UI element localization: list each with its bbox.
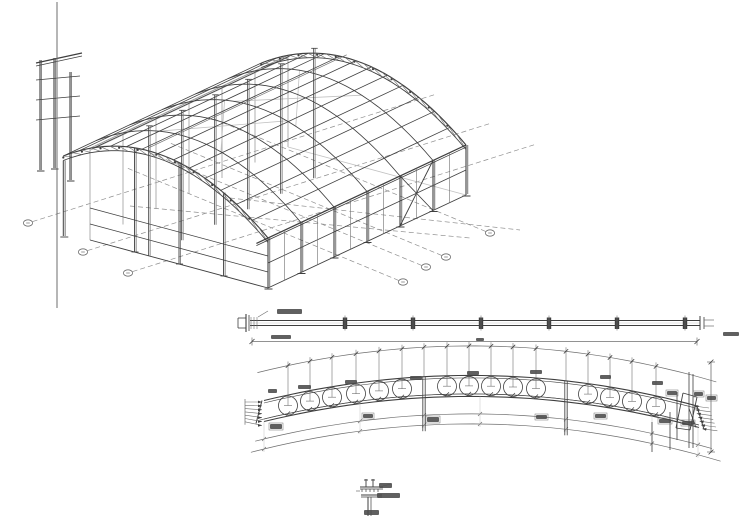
- micro-text-label: [659, 419, 671, 423]
- truss-node-gusset: [174, 161, 176, 163]
- micro-text-label: [379, 483, 392, 488]
- truss-node-gusset: [137, 149, 139, 151]
- micro-text-label: [268, 389, 277, 393]
- micro-text-label: [595, 414, 606, 418]
- micro-text-label: [345, 380, 357, 384]
- truss-node-gusset: [279, 57, 281, 59]
- truss-node-gusset: [155, 154, 157, 156]
- truss-node-gusset: [297, 54, 299, 56]
- truss-node-gusset: [428, 106, 430, 108]
- truss-node-gusset: [260, 63, 262, 65]
- truss-node-gusset: [81, 150, 83, 152]
- micro-text-label: [364, 510, 379, 515]
- micro-text-label: [723, 332, 739, 336]
- curved-girder-detail-view: [245, 342, 721, 461]
- micro-text-label: [410, 376, 422, 380]
- micro-text-label: [377, 493, 400, 498]
- end-wall-frame: [36, 53, 82, 181]
- beam-elevation-view: [238, 309, 739, 346]
- connection-section-detail: [356, 479, 400, 516]
- truss-node-gusset: [446, 125, 448, 127]
- micro-text-label: [707, 396, 716, 400]
- truss-node-gusset: [211, 184, 213, 186]
- micro-text-label: [476, 338, 484, 341]
- leader-arrow: [258, 416, 262, 419]
- micro-text-label: [427, 417, 439, 422]
- truss-node-gusset: [353, 61, 355, 63]
- truss-node-gusset: [230, 199, 232, 201]
- cad-drawing-canvas: [0, 0, 750, 516]
- ground-grid-lines: [23, 94, 536, 285]
- leader-arrow: [258, 420, 262, 423]
- micro-text-label: [530, 370, 542, 374]
- leader-arrow: [258, 424, 262, 427]
- truss-node-gusset: [248, 218, 250, 220]
- micro-text-label: [363, 414, 373, 418]
- leader-arrow: [695, 409, 699, 412]
- leader-arrow: [258, 412, 262, 415]
- truss-node-gusset: [390, 78, 392, 80]
- micro-text-label: [682, 421, 694, 425]
- micro-text-label: [652, 381, 663, 385]
- truss-node-gusset: [62, 156, 64, 158]
- micro-text-label: [694, 392, 703, 396]
- drawing-sheet: [0, 0, 750, 516]
- micro-text-label: [600, 375, 611, 379]
- truss-node-gusset: [409, 91, 411, 93]
- truss-node-gusset: [118, 147, 120, 149]
- isometric-structure-view: [60, 48, 470, 289]
- micro-text-label: [271, 335, 291, 339]
- truss-node-gusset: [99, 147, 101, 149]
- micro-text-label: [667, 391, 677, 395]
- truss-node-gusset: [192, 171, 194, 173]
- micro-text-label: [536, 415, 547, 419]
- truss-node-gusset: [335, 56, 337, 58]
- truss-node-gusset: [372, 68, 374, 70]
- micro-text-label: [298, 385, 311, 389]
- micro-text-label: [270, 424, 282, 429]
- leader-arrow: [702, 428, 706, 431]
- truss-node-gusset: [316, 54, 318, 56]
- leader-arrow: [697, 413, 701, 416]
- micro-text-label: [277, 309, 302, 314]
- micro-text-label: [467, 371, 479, 375]
